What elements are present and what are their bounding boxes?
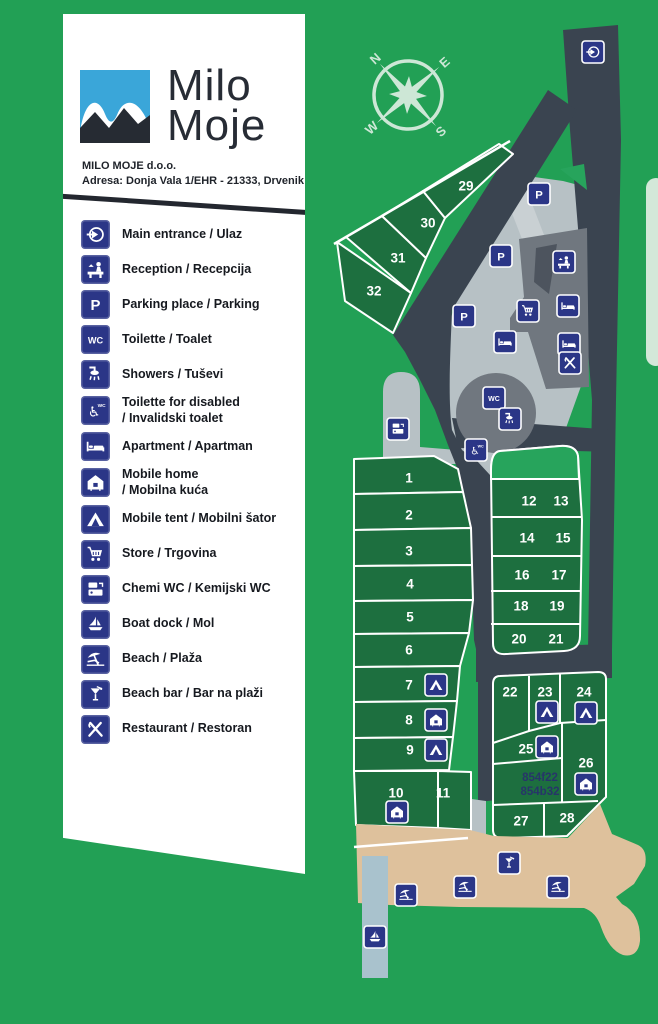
legend-label: Beach bar / Bar na plaži	[122, 686, 263, 702]
legend-item-reception: Reception / Recepcija	[81, 255, 293, 284]
mobile-home-marker	[425, 709, 447, 731]
legend-label: Restaurant / Restoran	[122, 721, 252, 737]
beach-marker	[547, 876, 569, 898]
company-address: Adresa: Donja Vala 1/EHR - 21333, Drveni…	[82, 175, 304, 187]
boat-dock-marker	[364, 926, 386, 948]
mobile-home-marker	[536, 736, 558, 758]
mobile-tent-marker	[425, 674, 447, 696]
plot-label-28: 28	[559, 811, 575, 826]
compass-w: W	[362, 118, 382, 138]
chemi-wc-icon	[81, 575, 110, 604]
plot-label-25: 25	[518, 742, 534, 757]
legend-label: Showers / Tuševi	[122, 367, 223, 383]
legend-list: Main entrance / UlazReception / Recepcij…	[81, 220, 293, 744]
plot-label-14: 14	[519, 531, 535, 546]
plots-1-11	[354, 456, 473, 830]
legend-label: Toilette for disabled / Invalidski toale…	[122, 395, 240, 426]
logo-line2: Moje	[167, 106, 266, 146]
legend-item-store: Store / Trgovina	[81, 540, 293, 569]
legend-label: Mobile home / Mobilna kuća	[122, 467, 208, 498]
svg-text:P: P	[535, 189, 543, 201]
parking-marker: P	[528, 183, 550, 205]
beach-marker	[454, 876, 476, 898]
plot-label-13: 13	[553, 494, 569, 509]
store-icon	[81, 540, 110, 569]
legend-label: Store / Trgovina	[122, 546, 216, 562]
plot-label-20: 20	[511, 632, 526, 647]
legend-item-beach: Beach / Plaža	[81, 645, 293, 674]
legend-item-boat-dock: Boat dock / Mol	[81, 610, 293, 639]
shower-icon	[81, 360, 110, 389]
mobile-home-icon	[81, 468, 110, 497]
legend-item-disabled-wc: ♿WCToilette for disabled / Invalidski to…	[81, 395, 293, 426]
legend-item-main-entrance: Main entrance / Ulaz	[81, 220, 293, 249]
legend-item-apartment: Apartment / Apartman	[81, 432, 293, 461]
parking-icon: P	[81, 290, 110, 319]
plot-label-19: 19	[549, 599, 564, 614]
boat-dock-icon	[81, 610, 110, 639]
mobile-tent-marker	[536, 701, 558, 723]
plot-label-23: 23	[537, 685, 553, 700]
svg-text:WC: WC	[478, 444, 484, 448]
neighbour-area	[646, 178, 658, 366]
disabled-wc-icon: ♿WC	[81, 396, 110, 425]
beach-marker	[395, 884, 417, 906]
plot-label-10: 10	[388, 786, 403, 801]
boat-dock-pier	[362, 856, 388, 978]
legend-label: Boat dock / Mol	[122, 616, 214, 632]
mobile-home-marker	[575, 773, 597, 795]
parking-marker: P	[490, 245, 512, 267]
main-entrance-icon	[81, 220, 110, 249]
beach-icon	[81, 645, 110, 674]
wc-marker: WC	[483, 387, 505, 409]
reception-icon	[81, 255, 110, 284]
plot-label-3: 3	[405, 544, 413, 559]
campground-map-page: { "panel": { "logo": { "line1": "Milo", …	[0, 0, 658, 1024]
plot-label-15: 15	[555, 531, 571, 546]
plot-label-4: 4	[406, 577, 414, 592]
legend-item-wc: WCToilette / Toalet	[81, 325, 293, 354]
plot-label-17: 17	[551, 568, 566, 583]
parking-marker: P	[453, 305, 475, 327]
milo-moje-logo	[80, 70, 150, 143]
legend-item-mobile-home: Mobile home / Mobilna kuća	[81, 467, 293, 498]
plot-label-30: 30	[420, 216, 435, 231]
legend-label: Chemi WC / Kemijski WC	[122, 581, 271, 597]
plot-label-6: 6	[405, 643, 413, 658]
compass-rose: N E S W	[329, 17, 485, 174]
svg-text:WC: WC	[98, 403, 106, 409]
plot-label-5: 5	[406, 610, 414, 625]
legend-label: Parking place / Parking	[122, 297, 260, 313]
svg-text:WC: WC	[488, 396, 500, 403]
plot-label-22: 22	[502, 685, 517, 700]
plot-label-12: 12	[521, 494, 536, 509]
plot-label-2: 2	[405, 508, 413, 523]
plot-label-1: 1	[405, 471, 413, 486]
plot-label-854b32: 854b32	[520, 786, 559, 798]
plot-label-9: 9	[406, 743, 414, 758]
compass-e: E	[436, 54, 453, 71]
plot-shape	[354, 528, 472, 566]
chemi-wc-marker	[387, 418, 409, 440]
legend-item-chemi-wc: Chemi WC / Kemijski WC	[81, 575, 293, 604]
plot-label-21: 21	[548, 632, 564, 647]
legend-panel: Milo Moje MILO MOJE d.o.o. Adresa: Donja…	[63, 14, 305, 874]
shower-marker	[499, 408, 521, 430]
compass-n: N	[367, 50, 384, 67]
plot-label-31: 31	[390, 251, 406, 266]
plot-label-7: 7	[405, 678, 413, 693]
logo-title: Milo Moje	[167, 66, 266, 147]
legend-label: Mobile tent / Mobilni šator	[122, 511, 276, 527]
plot-label-11: 11	[436, 786, 451, 801]
plots-12-21-top	[491, 446, 579, 479]
svg-text:P: P	[497, 251, 505, 263]
plot-label-18: 18	[513, 599, 529, 614]
plot-shape	[438, 771, 471, 830]
svg-text:P: P	[460, 311, 468, 323]
legend-item-shower: Showers / Tuševi	[81, 360, 293, 389]
logo-line1: Milo	[167, 66, 266, 106]
legend-item-mobile-tent: Mobile tent / Mobilni šator	[81, 505, 293, 534]
plot-label-27: 27	[513, 814, 528, 829]
legend-label: Main entrance / Ulaz	[122, 227, 242, 243]
wc-icon: WC	[81, 325, 110, 354]
svg-text:WC: WC	[88, 335, 104, 345]
legend-label: Apartment / Apartman	[122, 439, 253, 455]
company-name: MILO MOJE d.o.o.	[82, 160, 176, 172]
plot-label-8: 8	[405, 713, 413, 728]
mobile-tent-marker	[425, 739, 447, 761]
restaurant-marker	[559, 352, 581, 374]
legend-item-restaurant: Restaurant / Restoran	[81, 715, 293, 744]
svg-text:P: P	[91, 298, 101, 314]
mobile-tent-icon	[81, 505, 110, 534]
disabled-wc-marker: ♿WC	[465, 439, 487, 461]
plot-label-26: 26	[578, 756, 594, 771]
apartment-marker	[557, 295, 579, 317]
mobile-home-marker	[386, 801, 408, 823]
legend-item-beach-bar: Beach bar / Bar na plaži	[81, 680, 293, 709]
main-entrance-marker	[582, 41, 604, 63]
mobile-tent-marker	[575, 702, 597, 724]
panel-divider	[57, 193, 315, 215]
legend-label: Beach / Plaža	[122, 651, 202, 667]
beach-bar-marker	[498, 852, 520, 874]
plot-label-854f22: 854f22	[522, 772, 558, 784]
plot-label-16: 16	[514, 568, 530, 583]
apartment-marker	[494, 331, 516, 353]
compass-s: S	[433, 123, 450, 140]
legend-item-parking: PParking place / Parking	[81, 290, 293, 319]
plot-label-32: 32	[366, 284, 381, 299]
store-marker	[517, 300, 539, 322]
beach-bar-icon	[81, 680, 110, 709]
plot-label-24: 24	[576, 685, 592, 700]
legend-label: Reception / Recepcija	[122, 262, 251, 278]
apartment-icon	[81, 432, 110, 461]
plot-label-29: 29	[458, 179, 473, 194]
legend-label: Toilette / Toalet	[122, 332, 212, 348]
restaurant-icon	[81, 715, 110, 744]
reception-marker	[553, 251, 575, 273]
